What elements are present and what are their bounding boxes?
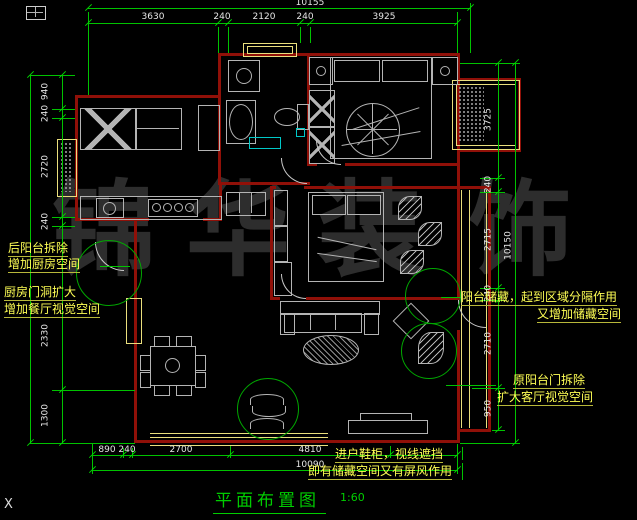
tv-cabinet [348,420,428,434]
washing-machine [228,60,260,92]
dim-label: 2330 [41,316,52,356]
dim-label: 3925 [362,12,406,23]
wall-segment [218,182,310,185]
entry-door-frame [247,46,293,54]
dim-label: 240 [484,165,495,205]
dim-ext [52,217,75,218]
wardrobe [274,226,288,262]
dining-chair [154,385,170,396]
dim-ext [460,443,520,444]
wall-segment [75,95,221,98]
dim-label: 3725 [484,100,495,140]
dining-chair [140,355,151,371]
wall-segment [457,429,491,432]
wall-segment [457,330,460,443]
dining-chair [195,372,206,388]
bathroom-sink [229,104,253,140]
dim-label: 2120 [242,12,286,23]
tv [360,413,412,421]
annotation-text: 又增加储藏空间 [537,307,621,323]
annotation-text: 扩大客厅视觉空间 [497,390,593,406]
dining-chair [140,372,151,388]
leader-line [462,463,463,480]
leader-line [462,447,463,460]
stove-burner [174,203,183,212]
dim-label: 3630 [131,12,175,23]
kitchen-sink [96,198,124,218]
dim-ext [300,27,301,43]
dim-label: 950 [484,389,495,429]
plant [418,222,442,246]
dim-line-right-segments [498,63,499,430]
leader-line [441,297,461,298]
pillow [334,60,380,82]
detail-callout-circle [237,378,299,440]
dim-label: 2700 [159,445,203,456]
hall-cabinet [226,192,266,216]
annotation-text: 进户鞋柜，视线遮挡 [335,447,443,463]
window-line [150,437,328,438]
annotation-text: 厨房门洞扩大 [4,285,76,301]
dim-ext [52,109,75,110]
dim-label: 240 [41,202,52,242]
annotation-text: 增加厨房空间 [8,257,80,273]
dim-label: 10150 [504,224,515,268]
detail-callout-circle [401,323,457,379]
plant [398,196,422,220]
dim-label: 240 [113,445,141,456]
annotation-text: 原阳台门拆除 [513,373,585,389]
window-frame [126,298,142,344]
dim-label: 2715 [484,220,495,260]
kitchen-counter [136,108,182,150]
dining-chair [176,385,192,396]
wardrobe [274,190,288,226]
sofa-arm [364,313,379,335]
pillow [312,195,346,215]
dim-label: 1300 [41,396,52,436]
dim-label: 240 [207,12,237,23]
dim-ext [52,390,135,391]
drawing-scale: 1:60 [340,491,365,504]
annotation-text: 即有储藏空间又有屏风作用 [308,464,452,480]
wall-hatch [458,86,484,142]
sofa-seat [284,313,362,333]
dim-label: 240 [41,94,52,134]
cad-floorplan-canvas: 锦 华 装 饰 10155 3630 240 2120 240 3925 890… [0,0,637,520]
stove-burner [185,203,194,212]
floor-drain [296,128,305,137]
kitchen-cabinet [80,108,136,150]
dim-ext [460,63,520,64]
dim-ext [470,3,471,53]
wall-segment [270,297,280,300]
fixture-label [249,137,281,149]
pillow [347,195,381,215]
window-icon [26,6,46,20]
sofa-arm [280,313,295,335]
leader-line [100,266,130,267]
stove-burner [152,203,161,212]
annotation-text: 阳台储藏，起到区域分隔作用 [461,290,617,306]
nightstand [309,57,333,85]
dim-ext [457,12,458,53]
dim-ext [52,226,75,227]
dining-chair [154,336,170,347]
dim-line-top-overall [88,8,470,9]
round-rug [346,103,400,157]
dim-label: 10155 [286,0,334,9]
wall-segment [345,163,460,166]
drawing-title: 平面布置图 [213,486,326,514]
annotation-text: 后阳台拆除 [8,241,68,257]
leader-line [446,385,496,386]
wall-segment [270,186,273,300]
pillow [382,60,428,82]
dim-ext [88,12,89,95]
coffee-table [303,335,359,365]
dining-chair [176,336,192,347]
dim-line-top-segments [88,23,457,24]
toilet-tank [297,104,309,130]
corner-x-mark: X [4,497,13,512]
dim-label: 240 [290,12,320,23]
dim-label: 2720 [41,147,52,187]
detail-callout-circle [405,268,461,324]
window-line [150,433,328,434]
dim-ext [228,27,229,53]
kitchen-cabinet [198,105,220,151]
table-centerpiece [165,358,180,373]
detail-callout-circle [76,240,142,306]
dim-ext [310,27,311,43]
dim-label: 4810 [288,445,332,456]
nightstand [432,57,458,85]
wardrobe [309,90,335,128]
dim-ext [30,443,135,444]
dim-label: 2710 [484,324,495,364]
dim-ext [218,27,219,53]
dim-ext [30,75,75,76]
dim-ext [52,118,75,119]
wall-segment [457,186,460,298]
wall-segment [304,186,460,189]
stove-burner [163,203,172,212]
annotation-text: 增加餐厅视觉空间 [4,302,100,318]
dining-chair [195,355,206,371]
wall-segment [134,440,460,443]
